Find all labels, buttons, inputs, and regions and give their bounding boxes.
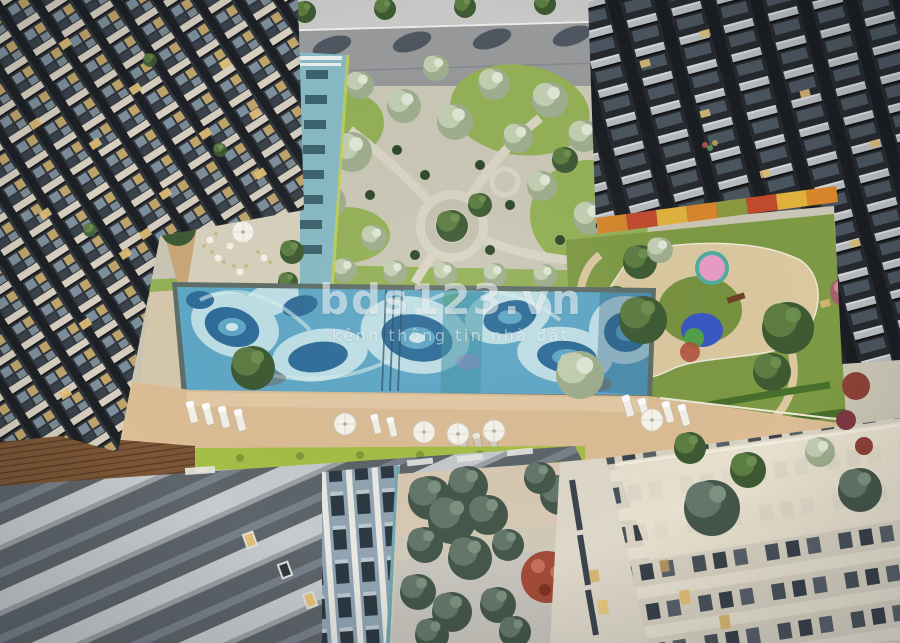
aerial-render-photo: bds123.vn kênh thông tin nhà đất xyxy=(0,0,900,643)
vignette-overlay xyxy=(0,0,900,643)
scene-canvas xyxy=(0,0,900,643)
